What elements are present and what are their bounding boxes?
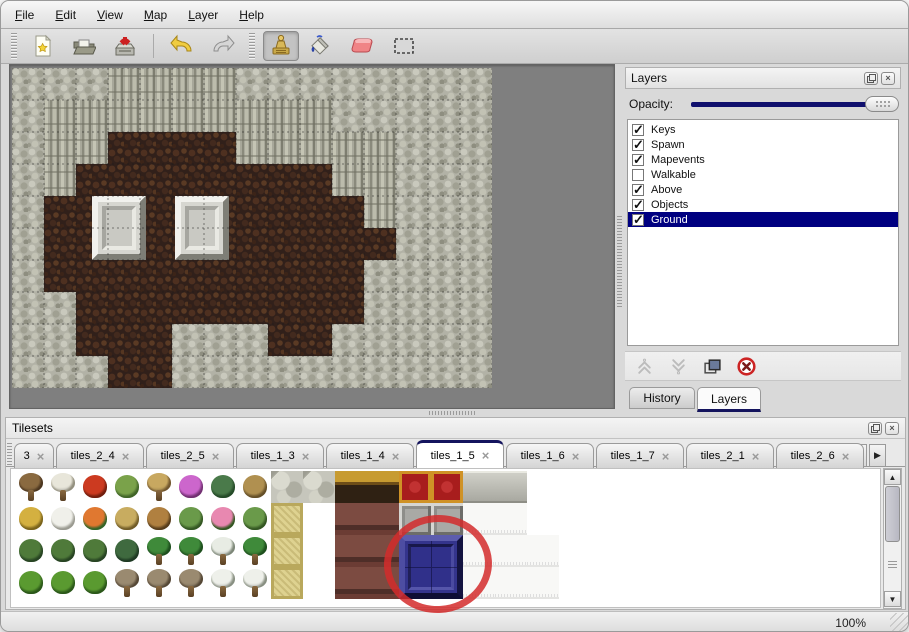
map-tile[interactable]	[140, 324, 172, 356]
map-tile[interactable]	[428, 164, 460, 196]
map-tile[interactable]	[268, 356, 300, 388]
map-tile[interactable]	[268, 196, 300, 228]
map-tile[interactable]	[12, 260, 44, 292]
tileset-tile-chair[interactable]	[367, 567, 399, 599]
map-canvas[interactable]	[12, 68, 492, 388]
layer-checkbox[interactable]	[632, 124, 644, 136]
map-tile[interactable]	[428, 292, 460, 324]
fill-tool-button[interactable]	[304, 31, 340, 61]
tileset-tile-stone[interactable]	[271, 471, 303, 503]
map-tile[interactable]	[44, 68, 76, 100]
tileset-tab-tiles_1_6[interactable]: tiles_1_6×	[506, 443, 594, 468]
tileset-tab-tiles_2_4[interactable]: tiles_2_4×	[56, 443, 144, 468]
tileset-tabbar: ◀ ▶ 3×tiles_2_4×tiles_2_5×tiles_1_3×tile…	[6, 439, 905, 467]
map-tile[interactable]	[332, 324, 364, 356]
tileset-tile-white_tile[interactable]	[463, 567, 495, 599]
raise-layer-icon	[635, 357, 654, 376]
map-tile[interactable]	[204, 356, 236, 388]
map-tile[interactable]	[332, 100, 364, 132]
map-tile[interactable]	[44, 356, 76, 388]
menu-item-map[interactable]: Map	[144, 8, 167, 22]
undo-button[interactable]	[164, 31, 200, 61]
map-tile[interactable]	[204, 260, 236, 292]
tileset-tile-flower_purple[interactable]	[175, 471, 207, 503]
map-tile[interactable]	[300, 132, 332, 164]
delete-layer-icon	[737, 357, 756, 376]
map-tile[interactable]	[172, 324, 204, 356]
duplicate-layer-button[interactable]	[701, 355, 723, 377]
map-tile[interactable]	[268, 292, 300, 324]
scroll-tabs-right-button[interactable]: ▶	[869, 444, 886, 467]
lower-layer-button[interactable]	[667, 355, 689, 377]
close-tab-icon[interactable]: ×	[37, 450, 45, 463]
close-tab-icon[interactable]: ×	[842, 450, 850, 463]
map-tile[interactable]	[300, 324, 332, 356]
map-tile[interactable]	[364, 260, 396, 292]
layer-row-spawn[interactable]: Spawn	[628, 137, 898, 152]
layer-row-mapevents[interactable]: Mapevents	[628, 152, 898, 167]
map-tile[interactable]	[332, 356, 364, 388]
tileset-tile-block3d[interactable]	[399, 503, 431, 535]
tileset-tab-tiles_2_1[interactable]: tiles_2_1×	[686, 443, 774, 468]
map-tile[interactable]	[204, 164, 236, 196]
layer-checkbox[interactable]	[632, 184, 644, 196]
zoom-level-label: 100%	[835, 616, 866, 630]
map-tile[interactable]	[396, 100, 428, 132]
layer-label: Ground	[651, 214, 688, 226]
tileset-tile-stump[interactable]	[111, 471, 143, 503]
map-tile[interactable]	[76, 260, 108, 292]
map-tile[interactable]	[428, 196, 460, 228]
select-tool-button[interactable]	[386, 31, 422, 61]
scroll-up-button[interactable]: ▲	[884, 469, 901, 485]
map-tile[interactable]	[12, 132, 44, 164]
map-tile[interactable]	[172, 132, 204, 164]
tileset-tile-mat[interactable]	[271, 535, 303, 567]
app-window: FileEditViewMapLayerHelp	[0, 0, 909, 632]
float-panel-icon	[871, 424, 879, 432]
close-tab-icon[interactable]: ×	[572, 450, 580, 463]
tileset-tile-stone[interactable]	[303, 471, 335, 503]
map-tile[interactable]	[300, 292, 332, 324]
map-tile[interactable]	[268, 132, 300, 164]
save-file-button[interactable]	[107, 31, 143, 61]
map-tile[interactable]	[12, 100, 44, 132]
map-tile[interactable]	[12, 292, 44, 324]
tileset-tile-flower_pink[interactable]	[207, 503, 239, 535]
tileset-tab-tiles_2_6[interactable]: tiles_2_6×	[776, 443, 864, 468]
close-panel-button[interactable]: ×	[881, 72, 895, 85]
tileset-tab-3[interactable]: 3×	[14, 443, 54, 468]
tilesets-panel: Tilesets × ◀ ▶ 3×tiles_2_4×tiles_2_5×til…	[5, 417, 906, 610]
float-panel-icon	[867, 74, 875, 82]
resize-grip[interactable]	[890, 613, 908, 631]
map-tile[interactable]	[332, 292, 364, 324]
map-tile[interactable]	[204, 100, 236, 132]
map-tile[interactable]	[12, 324, 44, 356]
layer-checkbox[interactable]	[632, 199, 644, 211]
map-tile[interactable]	[428, 228, 460, 260]
map-tile[interactable]	[236, 356, 268, 388]
layers-panel-titlebar[interactable]: Layers ×	[625, 67, 901, 89]
tileset-tile-fern[interactable]	[207, 471, 239, 503]
map-tile[interactable]	[268, 228, 300, 260]
tileset-tile-dead_tree[interactable]	[143, 567, 175, 599]
layer-row-ground[interactable]: Ground	[628, 212, 898, 227]
map-tile[interactable]	[428, 260, 460, 292]
tileset-tile-palm_snow[interactable]	[207, 535, 239, 567]
map-tile[interactable]	[396, 196, 428, 228]
vertical-splitter[interactable]	[616, 64, 623, 409]
tileset-tab-tiles_1_3[interactable]: tiles_1_3×	[236, 443, 324, 468]
map-tile[interactable]	[236, 196, 268, 228]
close-tilesets-button[interactable]: ×	[885, 422, 899, 435]
layer-row-objects[interactable]: Objects	[628, 197, 898, 212]
map-tile[interactable]	[172, 292, 204, 324]
map-tile[interactable]	[460, 164, 492, 196]
tileset-tile-carpet[interactable]	[399, 471, 431, 503]
map-tile[interactable]	[236, 100, 268, 132]
close-tab-icon[interactable]: ×	[662, 450, 670, 463]
map-tile[interactable]	[268, 324, 300, 356]
close-tab-icon[interactable]: ×	[752, 450, 760, 463]
map-tile[interactable]	[332, 260, 364, 292]
float-tilesets-button[interactable]	[868, 422, 882, 435]
tileset-tile-flower_orange[interactable]	[79, 503, 111, 535]
dock-tab-history[interactable]: History	[629, 387, 695, 409]
tileset-tile-carpet[interactable]	[431, 471, 463, 503]
opacity-slider-handle[interactable]	[865, 96, 899, 112]
tileset-tile-white_tile[interactable]	[527, 567, 559, 599]
map-tile[interactable]	[44, 260, 76, 292]
map-tile[interactable]	[236, 68, 268, 100]
map-tile[interactable]	[44, 164, 76, 196]
tileset-tab-tiles_1_4[interactable]: tiles_1_4×	[326, 443, 414, 468]
close-tab-icon[interactable]: ×	[482, 449, 490, 462]
close-tab-icon[interactable]: ×	[212, 450, 220, 463]
tileset-tile-bush[interactable]	[79, 567, 111, 599]
tileset-tile-chair[interactable]	[335, 567, 367, 599]
lower-layer-icon	[669, 357, 688, 376]
map-tile[interactable]	[364, 324, 396, 356]
close-tab-icon[interactable]: ×	[392, 450, 400, 463]
map-tile[interactable]	[108, 356, 140, 388]
map-tile[interactable]	[236, 228, 268, 260]
map-tile[interactable]	[364, 228, 396, 260]
map-tile[interactable]	[172, 260, 204, 292]
map-tile[interactable]	[364, 196, 396, 228]
tileset-tile-mat[interactable]	[271, 567, 303, 599]
status-bar: 100%	[1, 611, 909, 632]
close-tab-icon[interactable]: ×	[302, 450, 310, 463]
tileset-tile-white_tile[interactable]	[463, 503, 495, 535]
map-tile[interactable]	[108, 164, 140, 196]
map-tile[interactable]	[140, 292, 172, 324]
map-tile[interactable]	[172, 356, 204, 388]
eraser-tool-button[interactable]	[345, 31, 381, 61]
map-tile[interactable]	[300, 196, 332, 228]
map-tile[interactable]	[108, 292, 140, 324]
map-tile[interactable]	[12, 196, 44, 228]
layer-row-walkable[interactable]: Walkable	[628, 167, 898, 182]
tileset-tile-lily[interactable]	[175, 503, 207, 535]
tileset-tab-label: tiles_1_5	[431, 450, 475, 462]
new-file-button[interactable]	[25, 31, 61, 61]
map-tile[interactable]	[12, 164, 44, 196]
map-tile[interactable]	[140, 132, 172, 164]
map-tile[interactable]	[300, 164, 332, 196]
tileset-tile-hay_snow[interactable]	[47, 503, 79, 535]
map-tile[interactable]	[44, 132, 76, 164]
chevron-up-icon: ▲	[889, 473, 897, 482]
open-file-button[interactable]	[66, 31, 102, 61]
map-tile[interactable]	[300, 260, 332, 292]
map-tile[interactable]	[460, 356, 492, 388]
tileset-tile-slab[interactable]	[463, 471, 495, 503]
tilesets-panel-title: Tilesets	[12, 421, 53, 435]
redo-button[interactable]	[205, 31, 241, 61]
tileset-tab-label: tiles_2_5	[161, 450, 205, 462]
tileset-tile-chair[interactable]	[335, 535, 367, 567]
map-tile[interactable]	[76, 356, 108, 388]
tileset-tile-wood[interactable]	[335, 471, 367, 503]
menu-item-layer[interactable]: Layer	[188, 8, 218, 22]
map-tile[interactable]	[76, 100, 108, 132]
layer-label: Spawn	[651, 139, 685, 151]
map-tile[interactable]	[428, 356, 460, 388]
tileset-tile-bush[interactable]	[47, 567, 79, 599]
scroll-down-button[interactable]: ▼	[884, 591, 901, 607]
tileset-tile-flower_red[interactable]	[79, 471, 111, 503]
map-tile[interactable]	[172, 68, 204, 100]
tileset-tile-lily[interactable]	[239, 503, 271, 535]
map-canvas-panel[interactable]	[9, 64, 615, 409]
tileset-tile-chair[interactable]	[367, 503, 399, 535]
map-tile[interactable]	[332, 228, 364, 260]
layer-checkbox[interactable]	[632, 154, 644, 166]
map-tile[interactable]	[12, 356, 44, 388]
map-tile[interactable]	[396, 260, 428, 292]
layer-label: Walkable	[651, 169, 696, 181]
tileset-tile-white_tile[interactable]	[463, 535, 495, 567]
tileset-tile-white_tile[interactable]	[495, 503, 527, 535]
map-tile[interactable]	[396, 164, 428, 196]
layer-row-keys[interactable]: Keys	[628, 122, 898, 137]
map-tile[interactable]	[204, 324, 236, 356]
tileset-tab-tiles_1_5[interactable]: tiles_1_5×	[416, 440, 504, 468]
delete-layer-button[interactable]	[735, 355, 757, 377]
tileset-tile-dead_tree[interactable]	[111, 567, 143, 599]
map-tile[interactable]	[460, 324, 492, 356]
map-tile[interactable]	[396, 132, 428, 164]
tileset-tile-white_tile[interactable]	[495, 567, 527, 599]
layer-checkbox[interactable]	[632, 214, 644, 226]
menu-item-edit[interactable]: Edit	[55, 8, 76, 22]
tileset-tab-tiles_2_5[interactable]: tiles_2_5×	[146, 443, 234, 468]
tileset-tile-trunk_tan[interactable]	[143, 471, 175, 503]
toolbar-grip[interactable]	[11, 33, 17, 59]
map-tile[interactable]	[44, 292, 76, 324]
map-tile[interactable]	[428, 68, 460, 100]
layer-checkbox[interactable]	[632, 139, 644, 151]
map-tile[interactable]	[364, 100, 396, 132]
tileset-tile-leaves[interactable]	[143, 503, 175, 535]
map-tile[interactable]	[76, 324, 108, 356]
map-tile[interactable]	[76, 132, 108, 164]
dock-tab-layers[interactable]: Layers	[697, 387, 761, 412]
tileset-tile-branch[interactable]	[47, 471, 79, 503]
map-tile[interactable]	[140, 164, 172, 196]
horizontal-splitter[interactable]	[9, 409, 615, 417]
tileset-tile-slab[interactable]	[495, 471, 527, 503]
tileset-grid[interactable]	[10, 468, 881, 608]
map-tile[interactable]	[204, 292, 236, 324]
map-tile[interactable]	[460, 260, 492, 292]
map-tile[interactable]	[12, 228, 44, 260]
map-tile[interactable]	[268, 68, 300, 100]
tileset-tile-sprig[interactable]	[15, 535, 47, 567]
map-tile[interactable]	[364, 164, 396, 196]
tileset-tile-white_tile[interactable]	[527, 535, 559, 567]
scrollbar-thumb[interactable]	[885, 486, 900, 542]
tileset-tile-white_tile[interactable]	[495, 535, 527, 567]
map-tile[interactable]	[140, 356, 172, 388]
tileset-tile-bush_dark[interactable]	[111, 535, 143, 567]
map-tile[interactable]	[172, 164, 204, 196]
map-tile[interactable]	[76, 164, 108, 196]
layer-checkbox[interactable]	[632, 169, 644, 181]
tileset-tab-label: 3	[24, 450, 30, 462]
map-tile[interactable]	[140, 100, 172, 132]
tileset-tile-bush[interactable]	[15, 567, 47, 599]
map-tile[interactable]	[364, 132, 396, 164]
map-tile[interactable]	[44, 324, 76, 356]
map-tile[interactable]	[364, 356, 396, 388]
opacity-label: Opacity:	[629, 97, 691, 111]
float-panel-button[interactable]	[864, 72, 878, 85]
layer-row-above[interactable]: Above	[628, 182, 898, 197]
tileset-tile-palm[interactable]	[143, 535, 175, 567]
map-tile[interactable]	[364, 68, 396, 100]
map-tile[interactable]	[396, 228, 428, 260]
map-tile[interactable]	[108, 132, 140, 164]
map-tile[interactable]	[460, 196, 492, 228]
map-tile[interactable]	[140, 260, 172, 292]
map-tile[interactable]	[108, 324, 140, 356]
tileset-tile-dead_tree[interactable]	[175, 567, 207, 599]
map-tile[interactable]	[300, 356, 332, 388]
tileset-tile-palm[interactable]	[175, 535, 207, 567]
close-panel-icon: ×	[885, 74, 890, 83]
map-tile[interactable]	[396, 356, 428, 388]
map-tile[interactable]	[332, 196, 364, 228]
map-tile[interactable]	[332, 68, 364, 100]
tileset-tile-block3d[interactable]	[431, 503, 463, 535]
map-tile[interactable]	[44, 196, 76, 228]
tileset-tile-pine_snow[interactable]	[207, 567, 239, 599]
menu-item-help[interactable]: Help	[239, 8, 264, 22]
menu-item-file[interactable]: File	[15, 8, 34, 22]
map-tile[interactable]	[236, 164, 268, 196]
map-tile[interactable]	[268, 260, 300, 292]
map-tile[interactable]	[108, 260, 140, 292]
tileset-tile-chair[interactable]	[335, 503, 367, 535]
duplicate-layer-icon	[703, 357, 722, 376]
map-tile[interactable]	[364, 292, 396, 324]
tileset-scrollbar[interactable]: ▲ ▼	[883, 468, 902, 609]
map-tile[interactable]	[268, 164, 300, 196]
map-tile[interactable]	[236, 292, 268, 324]
tabbar-grip[interactable]	[7, 443, 12, 465]
opacity-slider[interactable]	[691, 96, 899, 112]
map-tile[interactable]	[428, 132, 460, 164]
map-tile[interactable]	[236, 260, 268, 292]
map-tile[interactable]	[204, 68, 236, 100]
map-tile[interactable]	[236, 132, 268, 164]
tileset-tile-twig[interactable]	[239, 471, 271, 503]
map-tile[interactable]	[300, 228, 332, 260]
map-tile[interactable]	[268, 100, 300, 132]
map-tile[interactable]	[460, 292, 492, 324]
tileset-tab-label: tiles_2_1	[701, 450, 745, 462]
tileset-tile-pine_snow[interactable]	[239, 567, 271, 599]
tileset-tile-hay[interactable]	[15, 503, 47, 535]
map-tile[interactable]	[172, 100, 204, 132]
tileset-tile-grass_dry[interactable]	[111, 503, 143, 535]
map-tile[interactable]	[460, 228, 492, 260]
tileset-tile-trunk[interactable]	[15, 471, 47, 503]
map-tile[interactable]	[108, 68, 140, 100]
map-tile[interactable]	[332, 164, 364, 196]
map-tile[interactable]	[332, 132, 364, 164]
map-tile[interactable]	[460, 100, 492, 132]
map-tile[interactable]	[12, 68, 44, 100]
map-tile[interactable]	[300, 68, 332, 100]
tileset-tile-chair[interactable]	[367, 535, 399, 567]
map-tile[interactable]	[300, 100, 332, 132]
map-tile[interactable]	[428, 324, 460, 356]
tileset-tab-tiles_1_7[interactable]: tiles_1_7×	[596, 443, 684, 468]
close-tab-icon[interactable]: ×	[122, 450, 130, 463]
tileset-tile-wood[interactable]	[367, 471, 399, 503]
tileset-tile-sprig[interactable]	[47, 535, 79, 567]
map-tile[interactable]	[108, 100, 140, 132]
map-tile[interactable]	[76, 292, 108, 324]
map-tile[interactable]	[460, 132, 492, 164]
map-tile[interactable]	[460, 68, 492, 100]
map-tile[interactable]	[396, 292, 428, 324]
map-tile[interactable]	[76, 68, 108, 100]
map-tile[interactable]	[236, 324, 268, 356]
toolbar-grip[interactable]	[249, 33, 255, 59]
map-tile[interactable]	[44, 100, 76, 132]
stamp-tool-button[interactable]	[263, 31, 299, 61]
map-tile[interactable]	[428, 100, 460, 132]
tileset-tile-mat[interactable]	[271, 503, 303, 535]
map-tile[interactable]	[396, 68, 428, 100]
map-tile[interactable]	[204, 132, 236, 164]
tileset-tile-palm[interactable]	[239, 535, 271, 567]
map-tile[interactable]	[396, 324, 428, 356]
menu-item-view[interactable]: View	[97, 8, 123, 22]
selected-blue-tile[interactable]	[399, 535, 463, 599]
map-tile[interactable]	[140, 68, 172, 100]
map-tile[interactable]	[44, 228, 76, 260]
tileset-tab-label: tiles_2_4	[71, 450, 115, 462]
tilesets-panel-titlebar[interactable]: Tilesets ×	[6, 418, 905, 439]
raise-layer-button[interactable]	[633, 355, 655, 377]
tileset-tile-sprig[interactable]	[79, 535, 111, 567]
